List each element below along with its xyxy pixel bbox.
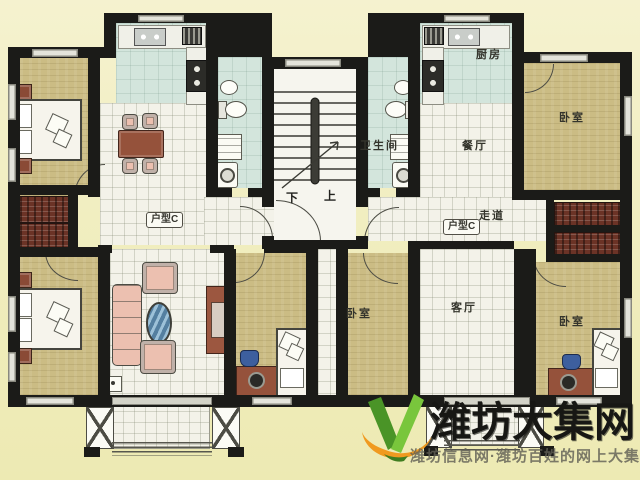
pillow <box>18 293 32 317</box>
wall <box>8 247 108 257</box>
room-label-dining: 餐厅 <box>462 141 488 152</box>
desk-chair <box>562 354 581 370</box>
kitchen-sink <box>134 28 166 46</box>
wardrobe-frame <box>554 225 620 232</box>
stairs-up-label: 上 <box>324 190 336 202</box>
armchair <box>142 262 178 294</box>
dining-chair <box>122 114 138 130</box>
washer-drum <box>220 168 235 183</box>
tv <box>211 302 225 338</box>
floorplan-image: 下 上 户型C 户型C 厨房 卫生间 餐厅 走道 卧室 卧室 客厅 卧室 潍坊大… <box>0 0 640 480</box>
balcony-post <box>228 447 244 457</box>
pillow <box>280 368 304 388</box>
unit-type-badge-left: 户型C <box>146 212 183 228</box>
room-label-bedroom-bottom-left: 卧室 <box>346 309 372 320</box>
wall <box>224 245 234 253</box>
window <box>8 84 16 120</box>
room-label-kitchen: 厨房 <box>476 50 502 61</box>
pillow <box>18 130 32 154</box>
balcony-post <box>84 447 100 457</box>
kitchen-sink <box>448 28 480 46</box>
wall <box>248 188 272 197</box>
kitchen-appliance <box>424 27 444 45</box>
bathroom-sink <box>220 80 238 95</box>
window <box>540 54 588 62</box>
window <box>285 59 341 67</box>
wall <box>512 62 524 190</box>
wall <box>88 47 100 197</box>
window <box>8 296 16 332</box>
wall <box>210 245 224 253</box>
coffee-table <box>146 302 172 344</box>
wall <box>396 188 420 197</box>
computer <box>248 372 265 389</box>
dining-chair <box>142 158 158 174</box>
sofa <box>112 284 142 366</box>
window <box>624 96 632 136</box>
stairs-down-label: 下 <box>286 192 298 204</box>
computer <box>560 374 577 391</box>
wardrobe-frame <box>546 254 620 262</box>
wall <box>20 185 90 195</box>
room-label-living: 客厅 <box>451 303 477 314</box>
wardrobe <box>12 196 70 223</box>
wall <box>98 249 110 397</box>
balcony-left-column <box>86 407 114 449</box>
wardrobe <box>554 232 622 256</box>
wall <box>262 57 274 207</box>
wall <box>216 13 272 57</box>
window <box>8 148 16 182</box>
window <box>26 397 74 405</box>
wall <box>224 249 236 397</box>
wall <box>512 190 632 200</box>
window <box>138 15 184 22</box>
room-label-bedroom-bottom-right: 卧室 <box>559 317 585 328</box>
wall <box>306 249 318 397</box>
wardrobe-frame <box>546 198 554 262</box>
armchair <box>140 340 176 374</box>
watermark-site-name: 潍坊大集网 <box>430 402 635 443</box>
dining-chair <box>142 113 158 129</box>
stove <box>422 60 444 92</box>
window <box>252 397 292 405</box>
window <box>624 298 632 338</box>
dot <box>111 381 115 385</box>
dining-table <box>118 130 164 158</box>
watermark-tagline: 潍坊信息网·潍坊百姓的网上大集 <box>410 449 640 464</box>
desk-chair <box>240 350 259 367</box>
wall <box>262 240 368 249</box>
dining-chair <box>122 158 138 174</box>
wall <box>356 57 368 207</box>
wall <box>408 13 420 197</box>
staircase <box>274 86 356 196</box>
bathroom-cabinet <box>216 134 242 160</box>
unit-type-badge-right: 户型C <box>443 219 480 235</box>
wall <box>206 188 232 197</box>
window <box>444 15 490 22</box>
toilet <box>385 101 407 118</box>
stove <box>186 60 208 92</box>
wall <box>68 195 78 253</box>
room-label-corridor: 走道 <box>479 211 505 222</box>
living-right-floor <box>420 249 514 395</box>
toilet <box>225 101 247 118</box>
pillow <box>18 318 32 342</box>
wall <box>408 245 420 395</box>
wall <box>368 188 380 197</box>
light-shaft-floor <box>318 249 336 397</box>
kitchen-appliance <box>182 27 202 45</box>
room-label-bedroom-top-right: 卧室 <box>559 113 585 124</box>
pillow <box>595 368 618 388</box>
pillow <box>18 104 32 128</box>
window <box>32 49 78 57</box>
balcony-left-railing <box>112 442 212 456</box>
balcony-door <box>112 397 212 405</box>
window <box>8 352 16 382</box>
balcony-left-column <box>212 407 240 449</box>
wall <box>98 245 112 253</box>
wall <box>514 249 536 395</box>
room-label-bathroom: 卫生间 <box>360 141 399 152</box>
wardrobe <box>554 202 622 227</box>
wall <box>336 249 348 397</box>
wall <box>408 241 514 249</box>
